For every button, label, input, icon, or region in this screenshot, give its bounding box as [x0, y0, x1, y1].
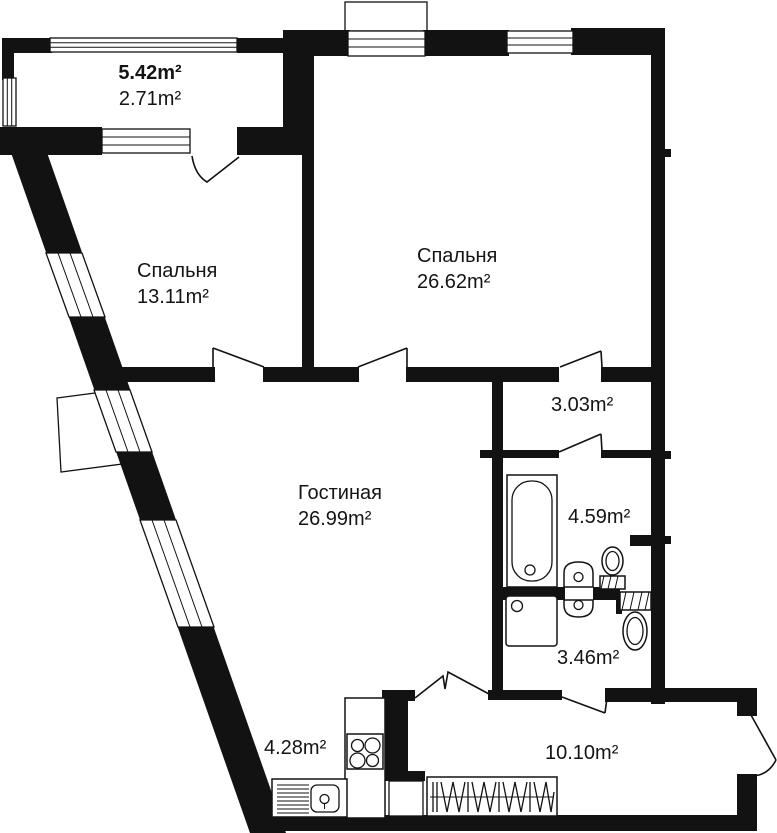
- balcony-area-reduced: 2.71m²: [104, 86, 196, 112]
- shower-tray-icon: [506, 596, 557, 646]
- corridor-area: 3.03m²: [551, 394, 613, 416]
- living-area: 26.99m²: [298, 506, 382, 532]
- floor-plan: 5.42m² 2.71m² Спальня 13.11m² Спальня 26…: [0, 0, 777, 833]
- bedroom2-corridor-door: [560, 351, 602, 367]
- label-corridor: 3.03m²: [551, 392, 613, 418]
- bedroom1-door: [213, 348, 264, 367]
- bedroom1-area: 13.11m²: [137, 284, 217, 310]
- label-balcony: 5.42m² 2.71m²: [104, 60, 196, 112]
- window-box-top: [345, 2, 427, 31]
- bedroom2-window-right: [507, 31, 573, 53]
- bedroom1-name: Спальня: [137, 258, 217, 284]
- label-bedroom1: Спальня 13.11m²: [137, 258, 217, 310]
- diagonal-window-3: [140, 520, 214, 627]
- balcony-left-window: [3, 78, 16, 126]
- label-hallway: 10.10m²: [545, 740, 618, 766]
- bedroom2-door: [358, 348, 407, 367]
- entrance-door: [751, 715, 776, 776]
- bedroom2-window-left: [348, 31, 425, 56]
- bathtub-icon: [507, 475, 557, 587]
- bedroom2-name: Спальня: [417, 243, 497, 269]
- bathroom-toilet-icon: [600, 547, 625, 589]
- bedroom2-area: 26.62m²: [417, 269, 497, 295]
- bathroom-sink-icon: [564, 562, 593, 587]
- label-wc: 3.46m²: [557, 645, 619, 671]
- label-bathroom: 4.59m²: [568, 504, 630, 530]
- kitchen-sink-icon: [272, 779, 347, 817]
- stove-icon: [347, 734, 383, 769]
- bathroom-area: 4.59m²: [568, 506, 630, 528]
- kitchen-area: 4.28m²: [264, 737, 326, 759]
- wc-door: [562, 697, 607, 713]
- balcony-top-window: [50, 38, 237, 52]
- label-kitchen: 4.28m²: [264, 735, 326, 761]
- label-bedroom2: Спальня 26.62m²: [417, 243, 497, 295]
- corridor-bathroom-door: [559, 434, 602, 452]
- living-hall-passage: [415, 672, 489, 698]
- wc-sink-icon: [564, 600, 593, 617]
- balcony-inner-window: [102, 129, 190, 153]
- diagonal-window-1: [46, 253, 105, 317]
- living-name: Гостиная: [298, 480, 382, 506]
- wc-toilet-icon: [620, 592, 651, 650]
- duct-box: [389, 781, 423, 816]
- wardrobe-icon: [427, 777, 557, 816]
- label-living: Гостиная 26.99m²: [298, 480, 382, 532]
- hallway-area: 10.10m²: [545, 742, 618, 764]
- floor-plan-drawing: [0, 0, 777, 833]
- wc-area: 3.46m²: [557, 647, 619, 669]
- balcony-door: [192, 156, 239, 182]
- balcony-area-total: 5.42m²: [104, 60, 196, 86]
